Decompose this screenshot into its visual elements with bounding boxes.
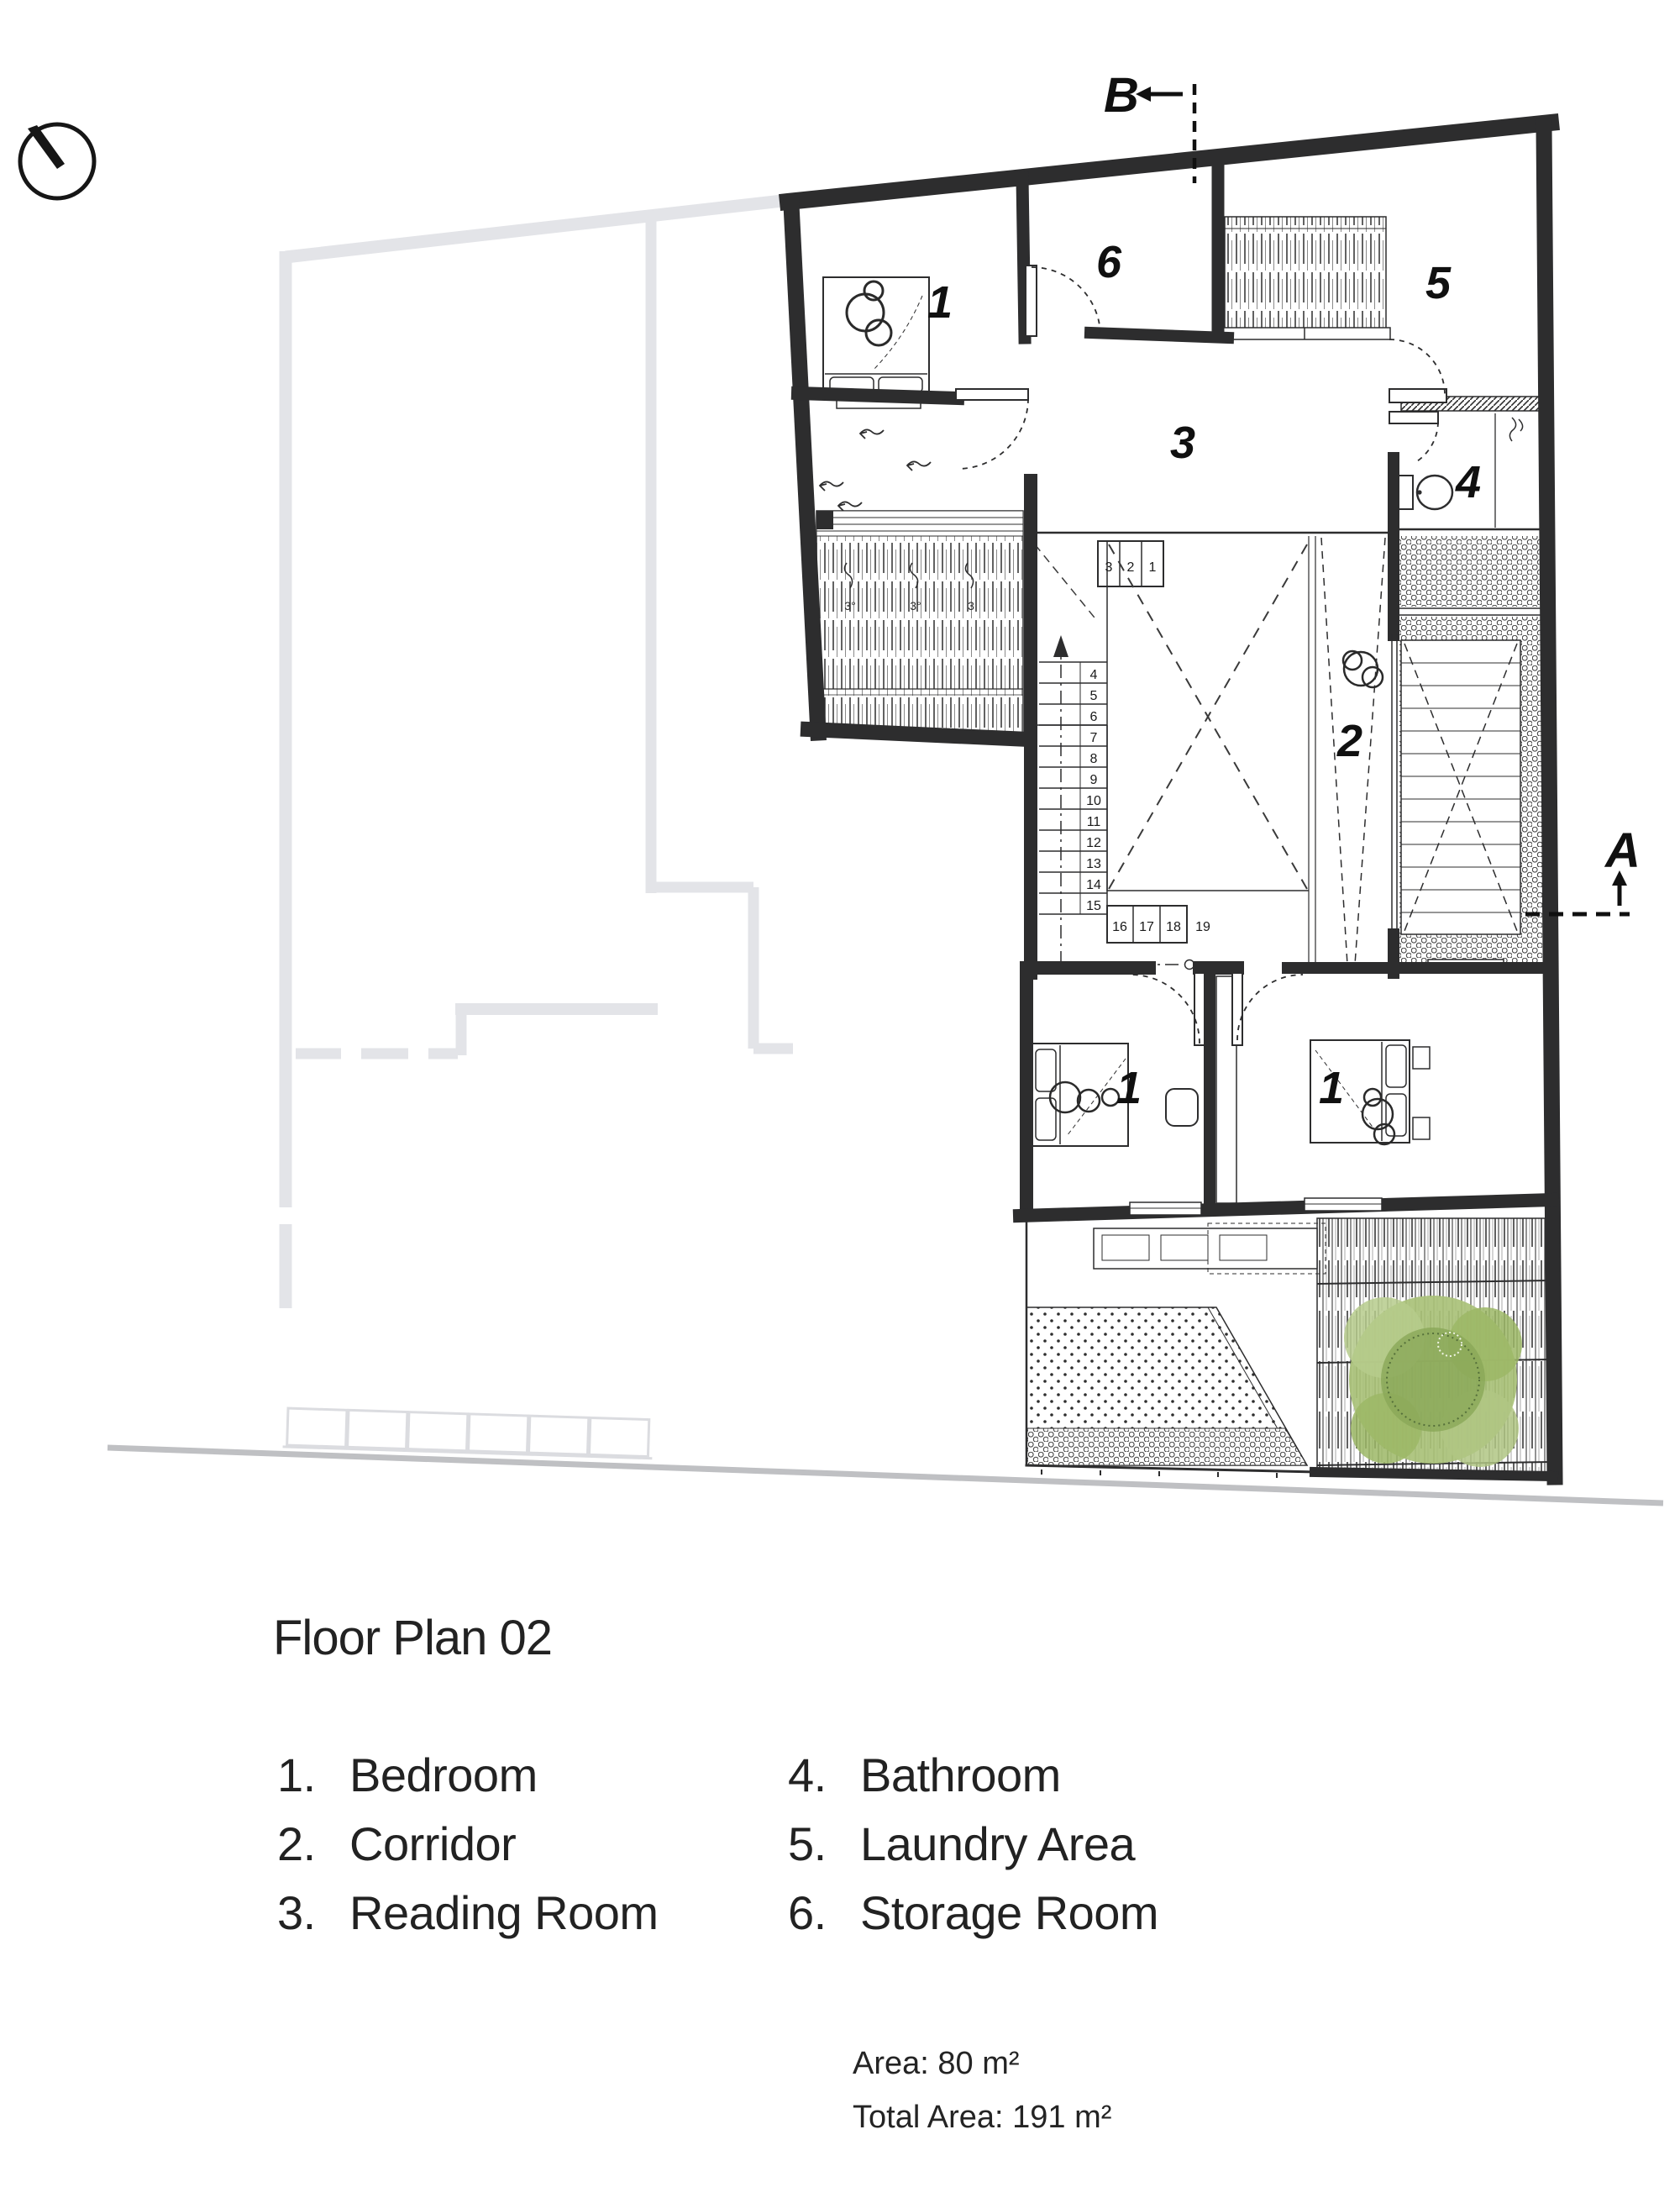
legend-item-bathroom: 4. Bathroom [788, 1748, 1158, 1817]
svg-text:11: 11 [1087, 815, 1101, 829]
svg-text:9: 9 [1090, 773, 1098, 787]
total-area-line: Total Area: 191 m² [853, 2090, 1111, 2144]
svg-text:8: 8 [1090, 752, 1098, 766]
area-summary: Area: 80 m² Total Area: 191 m² [853, 2037, 1111, 2144]
legend-item-bedroom: 1. Bedroom [277, 1748, 659, 1817]
louver-mark: 3° [910, 599, 921, 613]
area-line: Area: 80 m² [853, 2037, 1111, 2090]
svg-text:A: A [1604, 823, 1641, 878]
svg-text:5: 5 [1090, 689, 1098, 703]
person-top-view-icon [1343, 651, 1383, 687]
svg-text:18: 18 [1166, 920, 1181, 934]
floor-plan-sheet: 3° 3° 3 [0, 0, 1680, 2203]
legend-item-reading-room: 3. Reading Room [277, 1885, 659, 1954]
room-label-storage: 6 [1096, 237, 1122, 287]
room-label-laundry: 5 [1425, 258, 1452, 308]
svg-text:10: 10 [1086, 794, 1101, 808]
void-cross [1035, 544, 1307, 889]
legend-column-left: 1. Bedroom 2. Corridor 3. Reading Room [277, 1748, 659, 1954]
room-label-bedroom-right: 1 [1319, 1063, 1344, 1113]
legend-label: Bathroom [860, 1748, 1061, 1802]
legend-label: Storage Room [860, 1885, 1158, 1940]
legend-number: 4. [788, 1748, 860, 1802]
north-indicator-icon [20, 124, 94, 198]
room-label-bedroom-left: 1 [1116, 1063, 1142, 1113]
room-label-bedroom-top: 1 [927, 277, 953, 328]
svg-text:19: 19 [1195, 920, 1210, 934]
legend-item-storage-room: 6. Storage Room [788, 1885, 1158, 1954]
svg-text:12: 12 [1086, 836, 1101, 850]
balcony-counter [1094, 1223, 1326, 1274]
legend-number: 6. [788, 1885, 860, 1940]
legend-number: 5. [788, 1817, 860, 1871]
legend-item-corridor: 2. Corridor [277, 1817, 659, 1885]
svg-text:7: 7 [1090, 731, 1098, 745]
louver-screen-room: 3° 3° 3 [816, 511, 1023, 736]
legend-number: 2. [277, 1817, 349, 1871]
legend-label: Bedroom [349, 1748, 538, 1802]
svg-text:B: B [1104, 68, 1139, 123]
room-label-bathroom: 4 [1455, 457, 1481, 507]
svg-text:13: 13 [1086, 857, 1101, 871]
legend-number: 3. [277, 1885, 349, 1940]
svg-text:1: 1 [1149, 560, 1157, 575]
room-label-corridor: 2 [1336, 716, 1362, 766]
reading-nook [1399, 536, 1542, 971]
legend-label: Corridor [349, 1817, 516, 1871]
room-label-reading: 3 [1170, 418, 1195, 468]
page-title: Floor Plan 02 [273, 1610, 552, 1666]
ghost-planter-row [283, 1408, 654, 1459]
legend-label: Reading Room [349, 1885, 659, 1940]
svg-text:14: 14 [1086, 878, 1101, 892]
tree-icon [1344, 1296, 1522, 1467]
louver-mark: 3° [844, 599, 855, 613]
laundry-drying-rack [1222, 217, 1390, 339]
legend-column-right: 4. Bathroom 5. Laundry Area 6. Storage R… [788, 1748, 1158, 1954]
staircase [1033, 541, 1309, 970]
svg-text:16: 16 [1112, 920, 1127, 934]
legend-label: Laundry Area [860, 1817, 1135, 1871]
svg-text:4: 4 [1090, 668, 1098, 682]
legend-item-laundry-area: 5. Laundry Area [788, 1817, 1158, 1885]
toilet-icon [1398, 476, 1452, 509]
legend-number: 1. [277, 1748, 349, 1802]
svg-text:3: 3 [1105, 560, 1113, 575]
desk-chair [1166, 1089, 1198, 1126]
ghost-lower-floor-outline [286, 200, 793, 1308]
stair-up-arrow-icon [1053, 635, 1068, 657]
svg-text:17: 17 [1139, 920, 1154, 934]
louver-mark: 3 [968, 599, 974, 613]
stair-numbers: 3 2 1 4 5 6 7 8 9 10 11 12 13 14 15 16 1… [1086, 560, 1210, 934]
shower-icon [1509, 418, 1522, 441]
svg-text:15: 15 [1086, 899, 1101, 913]
plant-squiggle-icons [820, 429, 931, 511]
svg-text:2: 2 [1127, 560, 1135, 575]
svg-text:6: 6 [1090, 710, 1098, 724]
